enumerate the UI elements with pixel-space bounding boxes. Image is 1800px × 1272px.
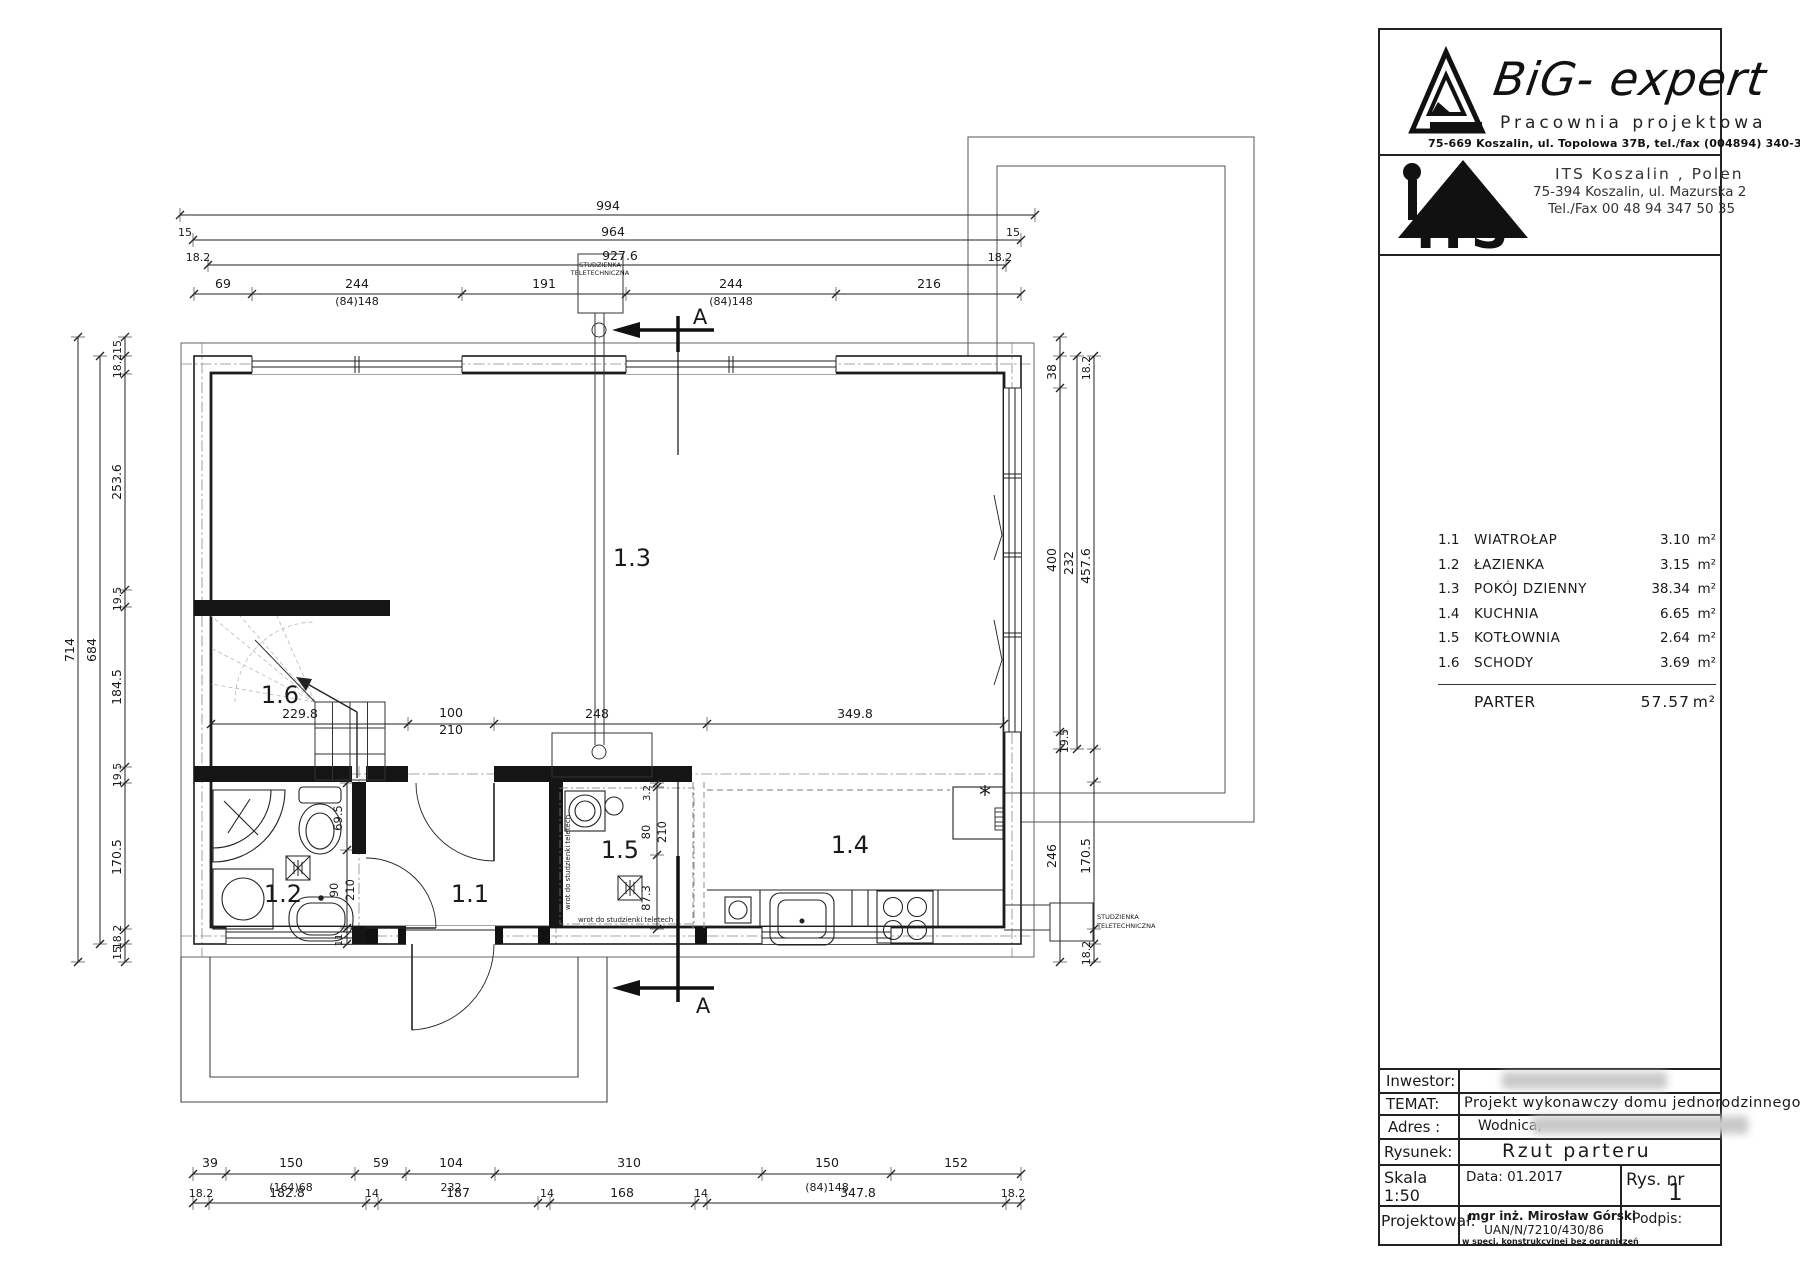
legend-lunit: m² — [1690, 581, 1716, 597]
dim-label: 39 — [202, 1155, 218, 1170]
dim-label: 69 — [215, 276, 231, 291]
dim-label: 18.2 — [988, 251, 1013, 264]
dim-label: 19.5 — [111, 587, 124, 612]
tb-line — [1378, 1092, 1722, 1094]
legend-lunit: m² — [1690, 630, 1716, 646]
legend-lname: KOTŁOWNIA — [1474, 630, 1632, 646]
legend-total-area: 57.57 — [1632, 693, 1690, 711]
wall-axes — [181, 343, 1034, 957]
tb-line — [1620, 1164, 1622, 1246]
annotation-label: STUDZIENKA — [1097, 913, 1139, 921]
dim-label: 14 — [540, 1187, 554, 1200]
brand-address: 75-669 Koszalin, ul. Topolowa 37B, tel./… — [1428, 137, 1800, 150]
skala-label: Skala — [1384, 1168, 1427, 1187]
legend-lno: 1.2 — [1438, 557, 1474, 573]
room-number-label: 1.2 — [264, 880, 302, 908]
dim-label: 248 — [585, 706, 609, 721]
its-phone: Tel./Fax 00 48 94 347 50 35 — [1548, 201, 1735, 217]
legend-larea: 6.65 — [1632, 606, 1690, 622]
legend-larea: 3.15 — [1632, 557, 1690, 573]
dim-label: 182.8 — [269, 1185, 305, 1200]
dim-label: 18.2 — [189, 1187, 214, 1200]
dim-label: 714 — [62, 638, 77, 662]
dim-label: 18.2 — [1080, 356, 1093, 381]
legend-lno: 1.5 — [1438, 630, 1474, 646]
rysunek-label: Rysunek: — [1384, 1143, 1452, 1161]
dim-label: 11 — [334, 934, 345, 947]
projektowal-upr: UAN/N/7210/430/86 — [1468, 1223, 1620, 1237]
projektowal-spec: w specj. konstrukcyjnej bez ograniczeń — [1462, 1237, 1626, 1246]
dim-label: 684 — [84, 638, 99, 662]
dim-label: 90 — [327, 883, 341, 898]
dim-label: 347.8 — [840, 1185, 876, 1200]
right-window — [994, 388, 1021, 732]
room-number-label: 1.5 — [601, 836, 639, 864]
tb-line — [1378, 1068, 1722, 1070]
annotation-label: TELETECHNICZNA — [570, 269, 630, 277]
legend-total-row: PARTER 57.57 m² — [1438, 684, 1716, 711]
brand-tagline: Pracownia projektowa — [1500, 113, 1767, 133]
dim-label: 210 — [439, 722, 463, 737]
dim-label: 152 — [944, 1155, 968, 1170]
legend-total-label: PARTER — [1474, 693, 1632, 711]
podpis-label: Podpis: — [1632, 1211, 1682, 1227]
legend-lname: WIATROŁAP — [1474, 532, 1632, 548]
dim-label: 191 — [532, 276, 556, 291]
dim-label: 170.5 — [1078, 838, 1093, 874]
dim-label: 18.2 — [111, 354, 124, 379]
room-number-label: 1.3 — [613, 544, 651, 572]
fridge-star-icon: * — [979, 781, 991, 809]
rysnr-value: 1 — [1668, 1180, 1683, 1206]
legend-larea: 38.34 — [1632, 581, 1690, 597]
brand-name: BiG- expert — [1490, 52, 1770, 106]
tb-line — [1378, 1164, 1722, 1166]
dim-label: 104 — [439, 1155, 463, 1170]
dim-label: 38 — [1044, 364, 1059, 380]
its-logo: ITS — [1394, 156, 1534, 254]
dim-label: 150 — [815, 1155, 839, 1170]
dim-label: 310 — [617, 1155, 641, 1170]
light-partition — [693, 782, 704, 928]
legend-lunit: m² — [1690, 532, 1716, 548]
dim-label: 18.2 — [1001, 1187, 1026, 1200]
dim-label: 253.6 — [109, 464, 124, 500]
dim-label: 187 — [446, 1185, 470, 1200]
dim-label: 150 — [279, 1155, 303, 1170]
annotation-label: STUDZIENKA — [579, 261, 621, 269]
drawing-sheet: { "header": { "brand": "BiG- expert", "t… — [0, 0, 1800, 1272]
legend-row: 1.3POKÓJ DZIENNY38.34m² — [1438, 577, 1716, 602]
legend-lno: 1.1 — [1438, 532, 1474, 548]
inwestor-label: Inwestor: — [1386, 1072, 1455, 1090]
inwestor-value-redacted — [1502, 1072, 1667, 1089]
dim-label: 964 — [601, 224, 625, 239]
dim-label: 210 — [655, 821, 669, 843]
projektowal-name: mgr inż. Mirosław Górski — [1468, 1209, 1620, 1223]
top-windows — [252, 355, 836, 374]
its-address: 75-394 Koszalin, ul. Mazurska 2 — [1533, 184, 1746, 200]
dim-label: 210 — [343, 879, 357, 901]
plan-labels: 994964927.61518.21518.269244(84)14819124… — [62, 198, 1156, 1200]
dim-label: 3.2 — [642, 785, 653, 801]
telecom-manhole-bottom — [1004, 903, 1093, 941]
dim-label: 14 — [694, 1187, 708, 1200]
fridge: * — [953, 781, 1004, 839]
dim-label: 216 — [917, 276, 941, 291]
annotation-label: TELETECHNICZNA — [1096, 922, 1156, 930]
dim-label: 18.2 — [186, 251, 211, 264]
dim-label: 170.5 — [109, 839, 124, 875]
legend-larea: 2.64 — [1632, 630, 1690, 646]
legend-lno: 1.3 — [1438, 581, 1474, 597]
adres-value-redacted — [1532, 1116, 1748, 1134]
legend-row: 1.1WIATROŁAP3.10m² — [1438, 528, 1716, 553]
section-line-A — [612, 316, 714, 1002]
dim-label: 244 — [345, 276, 369, 291]
legend-lunit: m² — [1690, 606, 1716, 622]
dim-label: 400 — [1044, 548, 1059, 572]
dim-label: 18.2 — [1080, 941, 1093, 966]
dim-label: (84)148 — [335, 295, 379, 308]
dim-label: 14 — [365, 1187, 379, 1200]
legend-total-unit: m² — [1690, 693, 1716, 711]
shower — [213, 790, 285, 862]
annotation-label: A — [696, 994, 711, 1018]
room-number-label: 1.4 — [831, 831, 869, 859]
stove — [877, 891, 933, 943]
dim-label: 19.5 — [111, 763, 124, 788]
adres-label: Adres : — [1388, 1118, 1440, 1136]
temat-label: TEMAT: — [1386, 1095, 1439, 1113]
annotation-label: wrot do studzienki teletech — [564, 815, 572, 910]
dim-label: 994 — [596, 198, 620, 213]
dim-label: 18.2 — [111, 925, 124, 950]
dim-label: 457.6 — [1078, 548, 1093, 584]
annotation-label: wrot do studzienki teletech — [578, 916, 673, 924]
dim-label: 69.5 — [331, 805, 345, 831]
kitchen-fittings: * — [707, 781, 1004, 945]
legend-lunit: m² — [1690, 557, 1716, 573]
legend-row: 1.5KOTŁOWNIA2.64m² — [1438, 626, 1716, 651]
room-number-label: 1.1 — [451, 880, 489, 908]
legend-row: 1.4KUCHNIA6.65m² — [1438, 602, 1716, 627]
legend-lno: 1.6 — [1438, 655, 1474, 671]
eave-outline — [181, 343, 1034, 957]
temat-value: Projekt wykonawczy domu jednorodzinnego — [1464, 1095, 1800, 1111]
dim-label: 87.3 — [639, 885, 653, 911]
dim-label: 100 — [439, 705, 463, 720]
dim-label: 19.5 — [1058, 729, 1071, 754]
legend-lname: ŁAZIENKA — [1474, 557, 1632, 573]
skala-value: 1:50 — [1384, 1186, 1420, 1205]
big-expert-logo — [1400, 42, 1495, 137]
bathroom-door — [366, 858, 436, 928]
living-room-door — [416, 783, 494, 861]
dim-label: (84)148 — [709, 295, 753, 308]
dim-label: 59 — [373, 1155, 389, 1170]
rysunek-value: Rzut parteru — [1502, 1140, 1651, 1162]
data-value: Data: 01.2017 — [1466, 1169, 1563, 1185]
legend-larea: 3.69 — [1632, 655, 1690, 671]
legend-row: 1.2ŁAZIENKA3.15m² — [1438, 553, 1716, 578]
dim-label: 232 — [1061, 551, 1076, 575]
its-logo-text: ITS — [1416, 201, 1508, 254]
legend-lname: POKÓJ DZIENNY — [1474, 581, 1632, 597]
dim-label: 80 — [639, 825, 653, 840]
header-divider-2 — [1378, 254, 1722, 256]
dim-label: 349.8 — [837, 706, 873, 721]
dim-label: 246 — [1044, 844, 1059, 868]
legend-lname: SCHODY — [1474, 655, 1632, 671]
kitchen-drain — [725, 897, 751, 923]
legend-lunit: m² — [1690, 655, 1716, 671]
projektowal-label: Projektował: — [1381, 1212, 1476, 1230]
dim-label: 15 — [178, 226, 192, 239]
legend-lno: 1.4 — [1438, 606, 1474, 622]
its-name: ITS Koszalin , Polen — [1555, 165, 1744, 183]
dim-label: 244 — [719, 276, 743, 291]
legend-larea: 3.10 — [1632, 532, 1690, 548]
room-number-label: 1.6 — [261, 681, 299, 709]
dim-label: 168 — [610, 1185, 634, 1200]
panel-border-left — [1378, 28, 1380, 1246]
panel-border-top — [1378, 28, 1722, 30]
legend-rows: 1.1WIATROŁAP3.10m²1.2ŁAZIENKA3.15m²1.3PO… — [1438, 528, 1716, 675]
annotation-label: A — [693, 305, 708, 329]
dim-label: 184.5 — [109, 669, 124, 705]
floor-drain — [286, 856, 310, 880]
porch-outline — [181, 957, 607, 1102]
dim-label: 15 — [1006, 226, 1020, 239]
legend-row: 1.6SCHODY3.69m² — [1438, 651, 1716, 676]
room-legend: 1.1WIATROŁAP3.10m²1.2ŁAZIENKA3.15m²1.3PO… — [1438, 528, 1716, 711]
dim-label: 15 — [111, 946, 124, 960]
legend-lname: KUCHNIA — [1474, 606, 1632, 622]
dim-label: 15 — [111, 340, 124, 354]
